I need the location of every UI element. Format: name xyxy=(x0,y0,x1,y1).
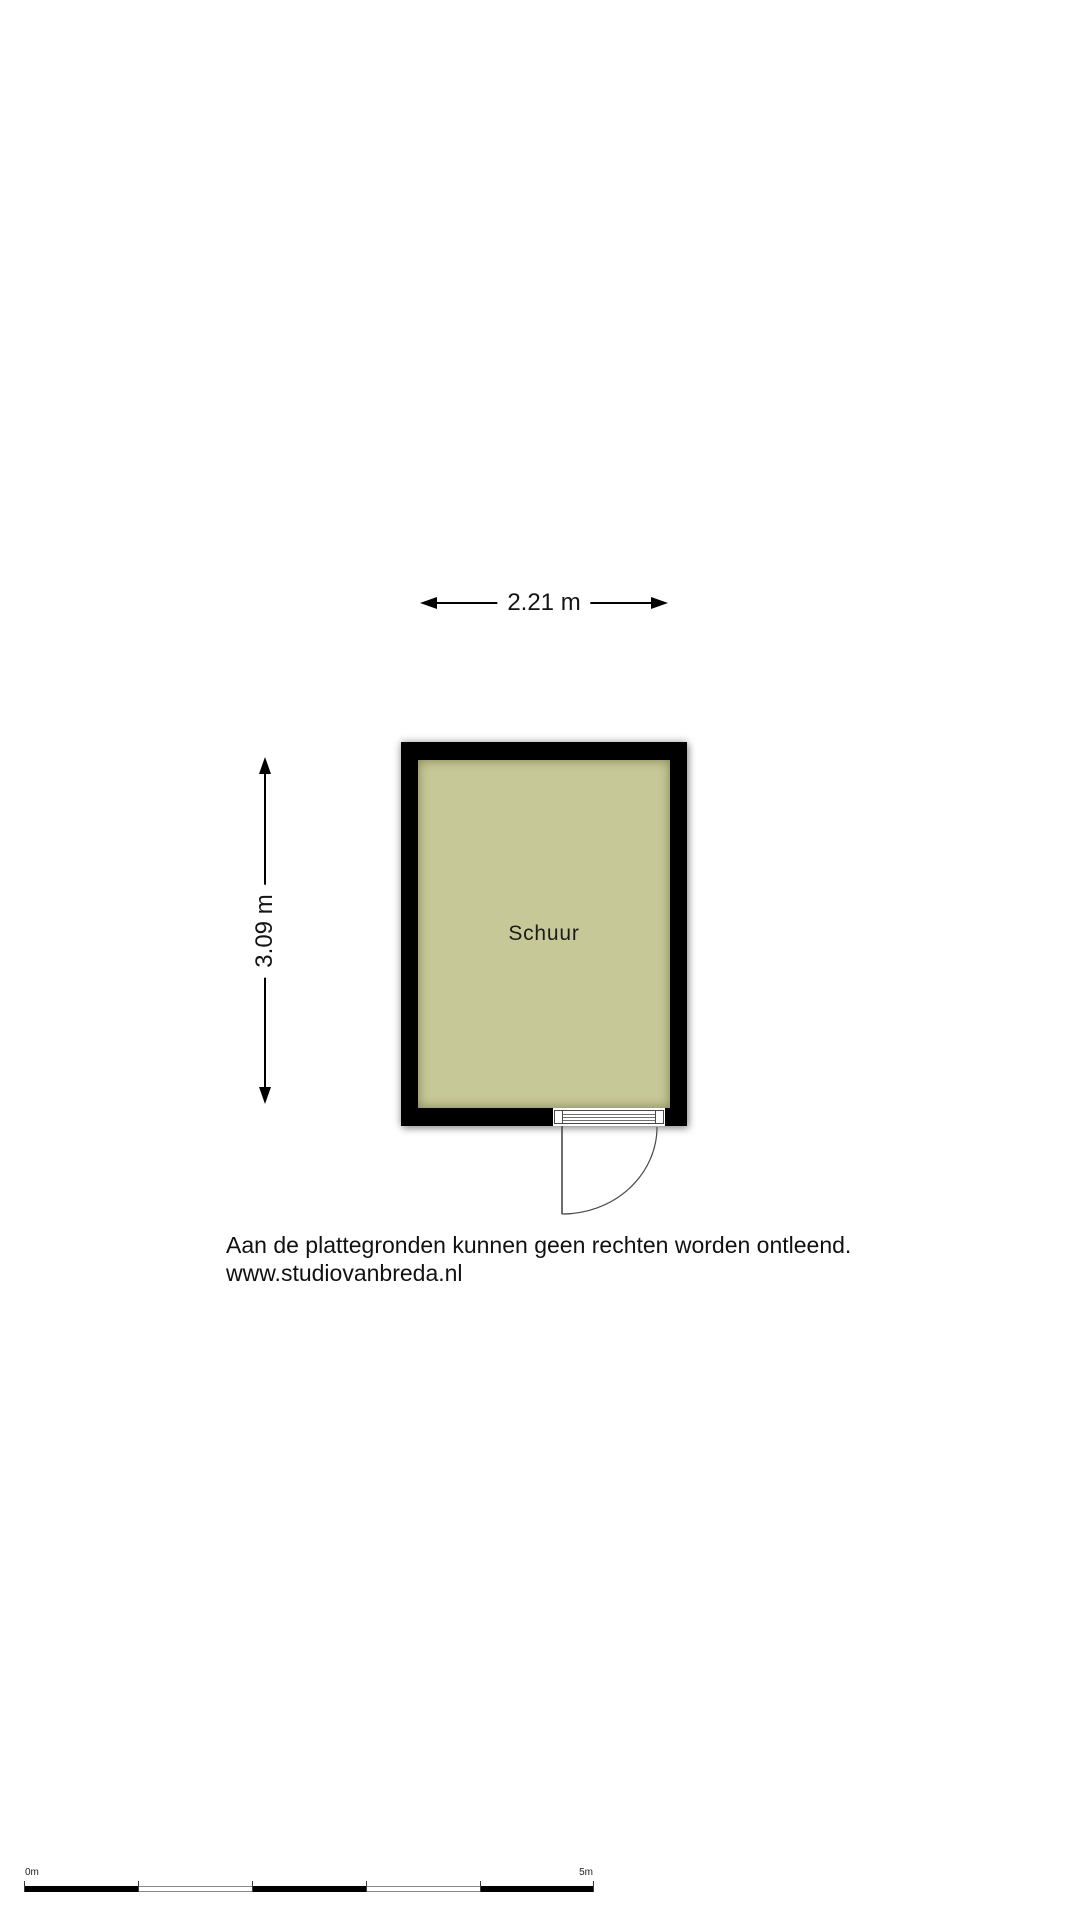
arrow-down-icon xyxy=(259,1087,271,1104)
room-floor: Schuur xyxy=(418,760,670,1108)
scale-bar: 0m 5m xyxy=(24,1867,594,1893)
scale-tick xyxy=(138,1881,139,1892)
floorplan-canvas: 2.21 m 3.09 m Schuur Aan de plattegronde… xyxy=(0,0,1080,1920)
disclaimer: Aan de plattegronden kunnen geen rechten… xyxy=(226,1231,851,1287)
width-dimension-label: 2.21 m xyxy=(497,589,590,617)
scale-tick xyxy=(480,1881,481,1892)
room-label: Schuur xyxy=(508,922,579,946)
disclaimer-line1: Aan de plattegronden kunnen geen rechten… xyxy=(226,1231,851,1259)
scale-bar-track xyxy=(24,1886,594,1892)
height-dimension: 3.09 m xyxy=(254,757,276,1104)
scale-tick xyxy=(366,1881,367,1892)
room-schuur: Schuur xyxy=(401,742,687,1126)
height-dimension-label: 3.09 m xyxy=(251,884,279,977)
door-swing-icon xyxy=(540,1120,685,1235)
arrow-up-icon xyxy=(259,757,271,774)
scale-segment xyxy=(138,1886,252,1892)
scale-tick xyxy=(593,1881,594,1892)
arrow-left-icon xyxy=(420,597,437,609)
scale-tick xyxy=(24,1881,25,1892)
width-dimension: 2.21 m xyxy=(420,592,668,614)
scale-end-label: 5m xyxy=(579,1867,593,1878)
arrow-right-icon xyxy=(651,597,668,609)
scale-start-label: 0m xyxy=(25,1867,39,1878)
scale-segment xyxy=(24,1886,138,1892)
scale-segment xyxy=(252,1886,366,1892)
disclaimer-line2: www.studiovanbreda.nl xyxy=(226,1259,851,1287)
sill-line xyxy=(563,1114,655,1115)
scale-tick xyxy=(252,1881,253,1892)
door-swing-arc xyxy=(562,1127,657,1214)
scale-segment xyxy=(366,1886,480,1892)
sill-line xyxy=(563,1117,655,1118)
scale-segment xyxy=(480,1886,594,1892)
